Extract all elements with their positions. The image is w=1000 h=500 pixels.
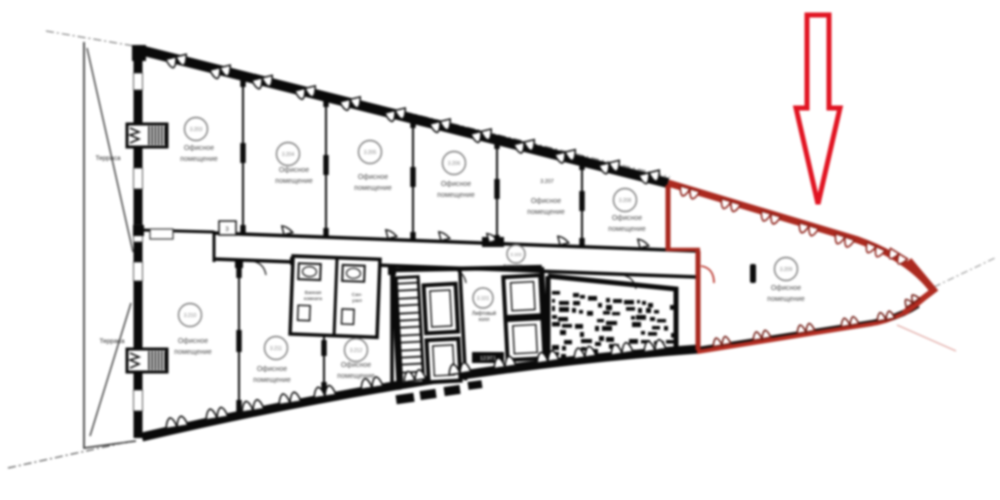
svg-text:Офисное: Офисное [341,362,371,369]
svg-text:Офисное: Офисное [184,145,214,152]
svg-text:помещение: помещение [608,226,646,233]
svg-text:помещение: помещение [337,373,375,380]
svg-text:3.101: 3.101 [477,296,490,302]
svg-text:12ЭТ1: 12ЭТ1 [480,356,496,362]
svg-text:3.208: 3.208 [619,198,632,204]
svg-text:Терраса: Терраса [100,338,125,345]
svg-text:3.204: 3.204 [282,152,295,158]
svg-text:комната: комната [304,297,322,302]
svg-text:3.205: 3.205 [364,150,377,156]
svg-text:3.206: 3.206 [448,161,461,167]
svg-text:3.203: 3.203 [190,127,203,133]
svg-text:Офисное: Офисное [771,285,801,292]
svg-text:Офисное: Офисное [612,215,642,222]
svg-text:3.102: 3.102 [510,252,522,257]
svg-text:помещение: помещение [174,349,212,356]
svg-text:помещение: помещение [437,192,475,199]
svg-text:Офисное: Офисное [358,174,388,181]
svg-text:Офисное: Офисное [279,167,309,174]
svg-text:Лифтовый: Лифтовый [472,310,496,317]
svg-text:3.207: 3.207 [540,179,554,185]
svg-text:3.211: 3.211 [270,346,282,352]
svg-text:узел: узел [352,299,362,304]
svg-text:Офисное: Офисное [257,366,287,373]
svg-text:помещение: помещение [253,377,291,384]
svg-text:Офисное: Офисное [441,181,471,188]
svg-text:Офисное: Офисное [531,198,561,205]
svg-text:холл: холл [479,317,490,323]
svg-text:помещение: помещение [767,296,805,303]
svg-text:Сан-: Сан- [352,292,363,298]
svg-text:помещение: помещение [275,178,313,185]
svg-text:Коридор: Коридор [504,263,523,269]
svg-text:Офисное: Офисное [178,338,208,345]
svg-text:3.212: 3.212 [350,348,363,354]
svg-text:3.209: 3.209 [780,267,793,273]
svg-text:помещение: помещение [527,209,565,216]
svg-text:помещение: помещение [180,156,218,163]
svg-text:помещение: помещение [354,185,392,192]
svg-text:3.210: 3.210 [184,313,197,319]
svg-text:Терраса: Терраса [96,155,121,162]
svg-text:Ванная: Ванная [305,290,322,296]
